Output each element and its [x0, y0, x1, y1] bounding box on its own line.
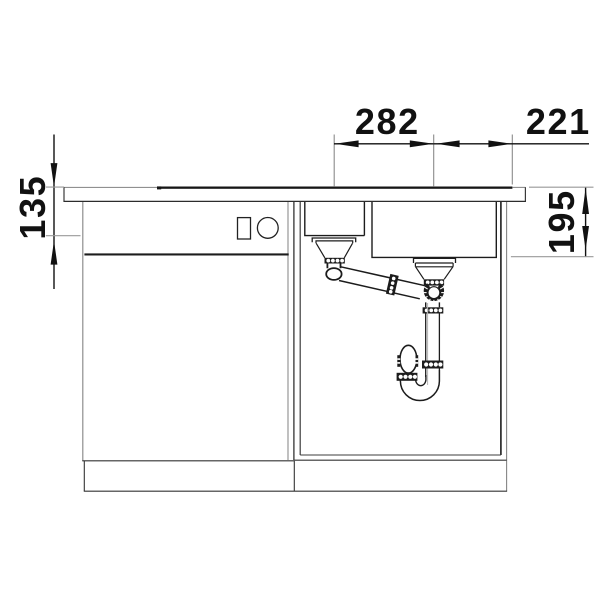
svg-text:195: 195 — [541, 189, 582, 254]
svg-text:282: 282 — [355, 101, 420, 142]
svg-text:221: 221 — [526, 101, 591, 142]
svg-text:135: 135 — [12, 175, 53, 240]
